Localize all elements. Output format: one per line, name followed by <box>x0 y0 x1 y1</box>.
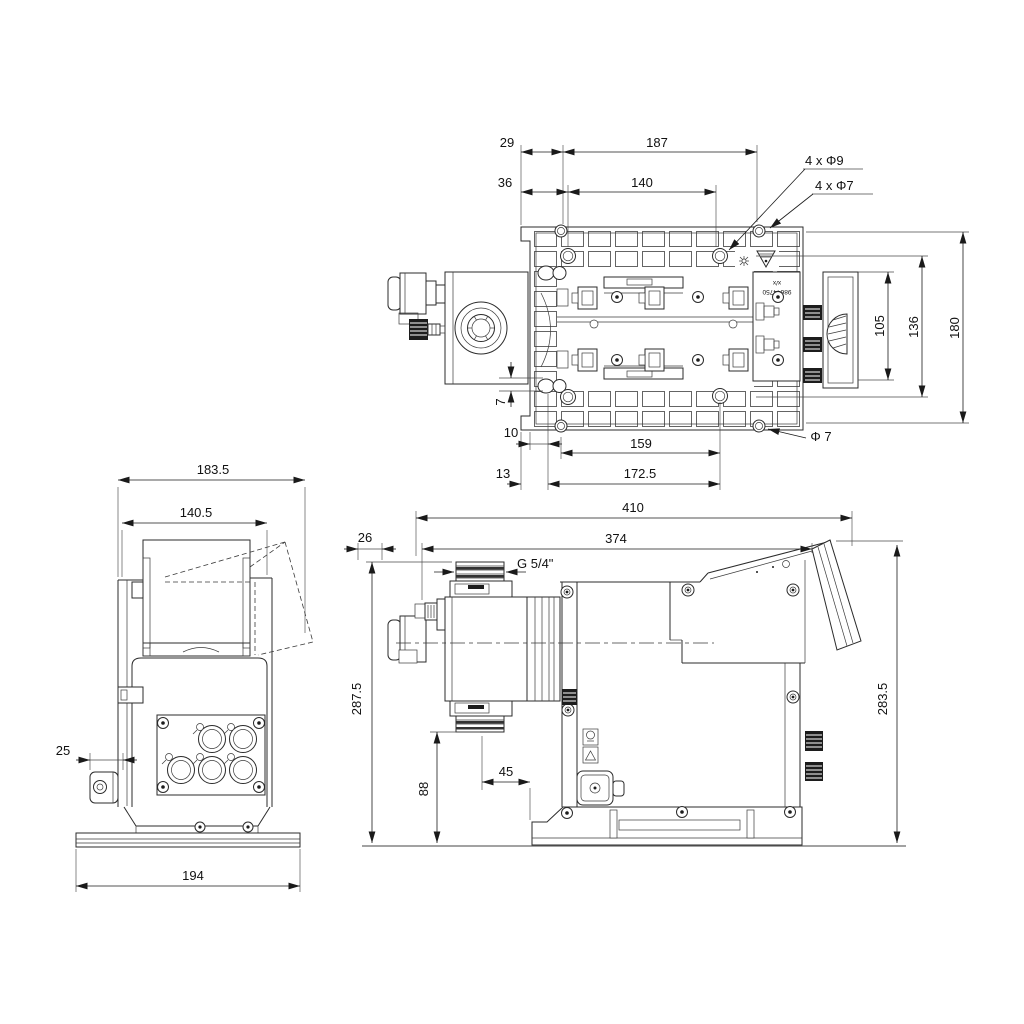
dim-88: 88 <box>416 782 431 796</box>
knurled-knob-top <box>409 319 428 340</box>
base-plate-front <box>76 833 300 847</box>
dim-187: 187 <box>646 135 668 150</box>
warning-labels-side <box>583 729 598 763</box>
top-view: x/x 98644750 <box>388 135 969 490</box>
ear-slot-top <box>538 266 554 280</box>
pump-body-side <box>560 541 831 807</box>
dim-287-5: 287.5 <box>349 683 364 716</box>
nameplate: x/x 98644750 <box>753 272 800 381</box>
dim-13: 13 <box>496 466 510 481</box>
callout-phi7: Φ 7 <box>810 429 831 444</box>
wall-bracket <box>90 772 118 803</box>
dim-10: 10 <box>504 425 518 440</box>
dim-374: 374 <box>605 531 627 546</box>
housing-screws-side <box>561 584 799 716</box>
dim-36: 36 <box>498 175 512 190</box>
dim-194: 194 <box>182 868 204 883</box>
dim-180: 180 <box>947 317 962 339</box>
dimensional-drawing: x/x 98644750 <box>0 0 1024 1024</box>
gland-cap-top <box>388 277 401 310</box>
discharge-thread <box>456 562 504 582</box>
connector-panel <box>157 715 265 795</box>
rear-cable-glands-top <box>803 305 822 383</box>
dim-410: 410 <box>622 500 644 515</box>
dosing-head-body <box>445 597 560 701</box>
callout-4xphi9: 4 x Φ9 <box>805 153 844 168</box>
dim-136: 136 <box>906 316 921 338</box>
drawing-page: x/x 98644750 <box>0 0 1024 1024</box>
control-cube-front <box>143 540 250 656</box>
callout-4xphi7: 4 x Φ7 <box>815 178 854 193</box>
dim-172-5: 172.5 <box>624 466 657 481</box>
dim-7: 7 <box>493 398 508 405</box>
dim-140: 140 <box>631 175 653 190</box>
dim-26: 26 <box>358 530 372 545</box>
front-view: 183.5 140.5 25 194 <box>56 462 313 892</box>
dim-29: 29 <box>500 135 514 150</box>
dim-25: 25 <box>56 743 70 758</box>
access-plate <box>577 771 624 805</box>
dosing-head-side <box>388 562 560 732</box>
dim-140-5: 140.5 <box>180 505 213 520</box>
side-view: 410 374 26 G 5/4" 287.5 88 45 <box>344 500 906 846</box>
frost-icon <box>739 256 749 266</box>
rear-cable-glands-side <box>805 731 823 781</box>
dosing-head-top <box>388 272 528 384</box>
callout-g54: G 5/4" <box>517 556 554 571</box>
ear-hole-top <box>553 267 566 280</box>
dim-283-5: 283.5 <box>875 683 890 716</box>
nameplate-line1: x/x <box>772 279 781 286</box>
control-box-top <box>823 272 858 388</box>
dim-183-5: 183.5 <box>197 462 230 477</box>
dim-159: 159 <box>630 436 652 451</box>
dim-105: 105 <box>872 315 887 337</box>
dim-45: 45 <box>499 764 513 779</box>
